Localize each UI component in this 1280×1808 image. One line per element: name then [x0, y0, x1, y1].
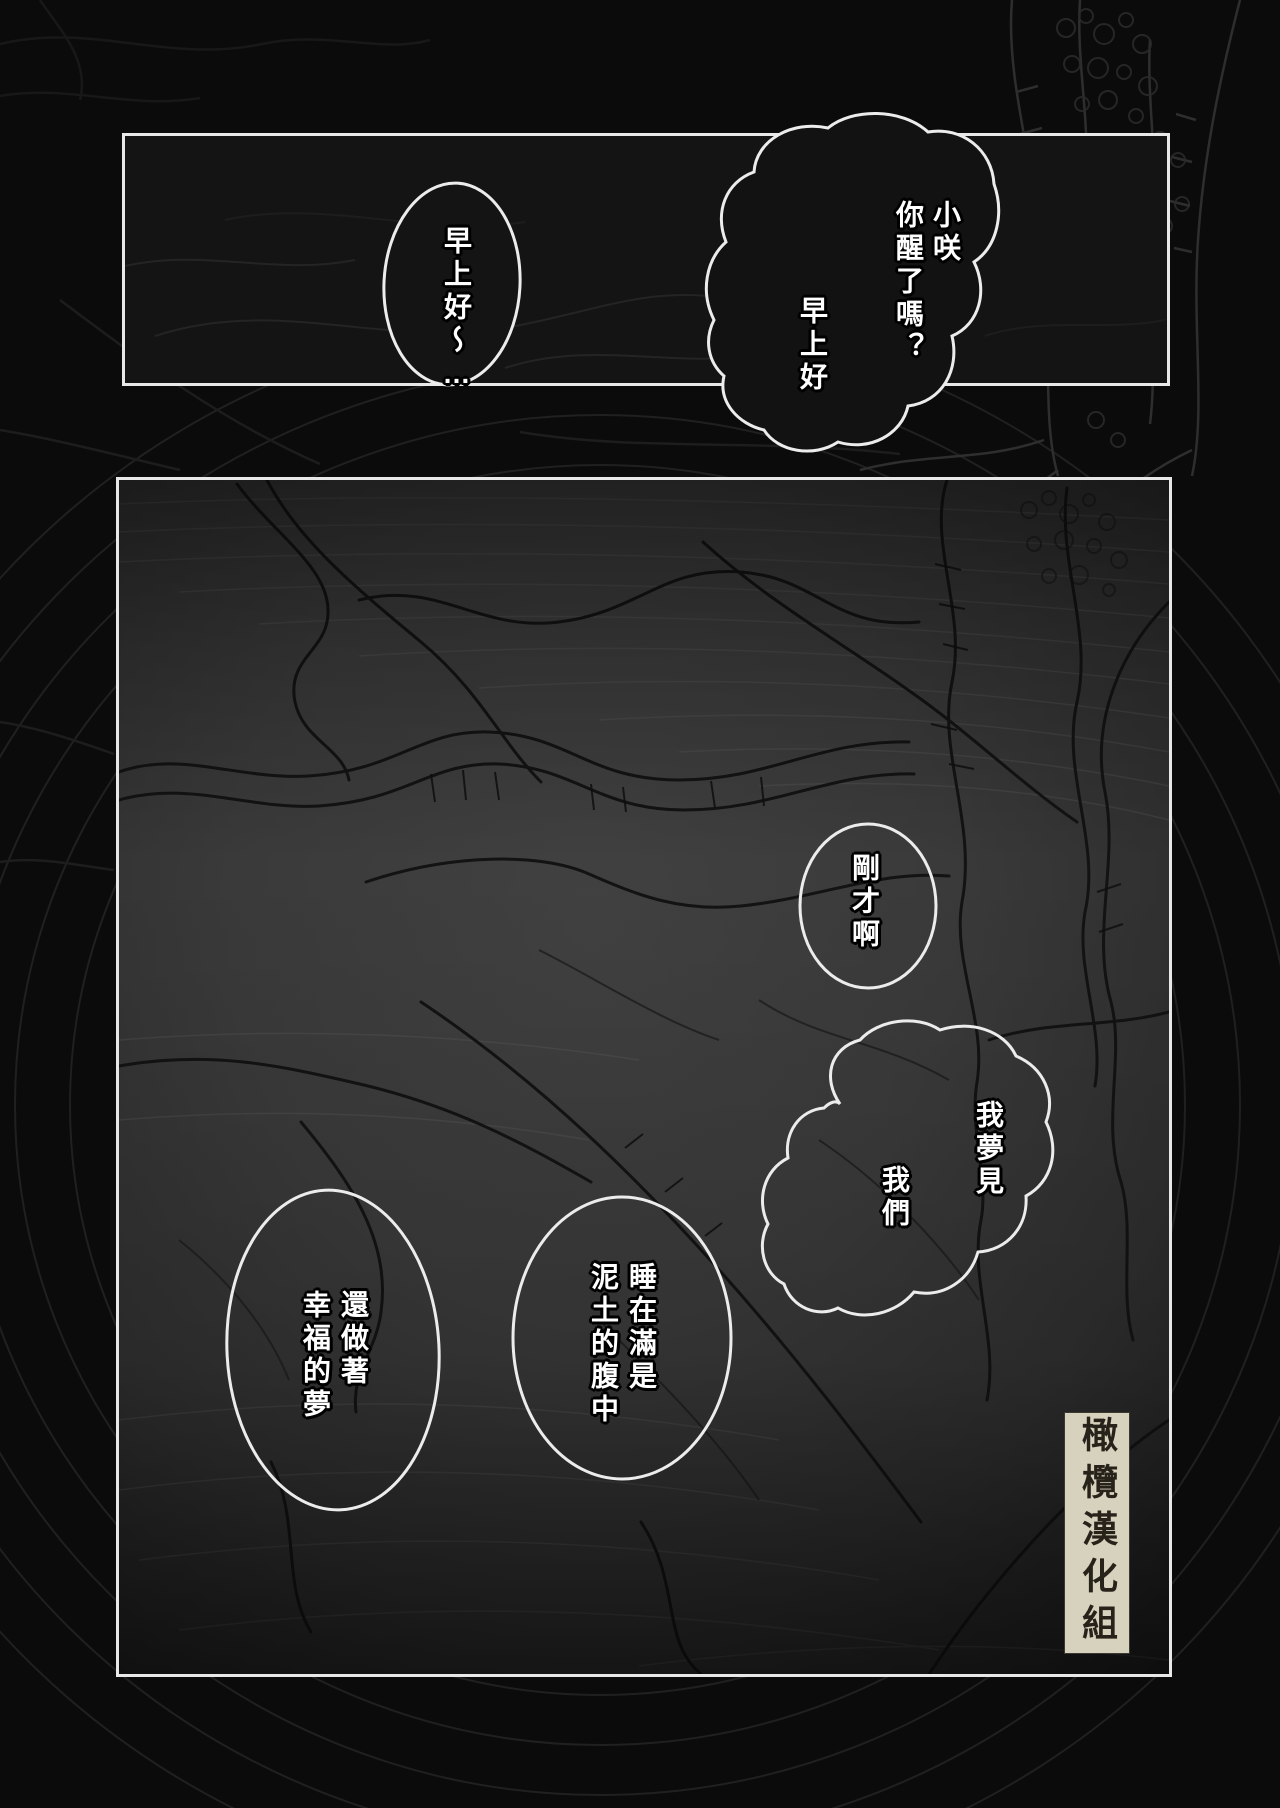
speech-text: 小咲: [927, 200, 963, 266]
speech-text: 還做著: [335, 1290, 371, 1389]
manga-page: 早上好～… 小咲 你醒了嗎？ 早上好 剛才啊 我夢見 我們 睡在滿是 泥土的腹中…: [0, 0, 1280, 1808]
speech-text: 早上好: [794, 296, 830, 395]
translator-credit-text: 橄欖漢化組: [1064, 1416, 1130, 1651]
speech-text: 你醒了嗎？: [890, 200, 926, 365]
speech-text: 幸福的夢: [297, 1290, 333, 1422]
speech-text: 我們: [876, 1165, 912, 1231]
bubble-sleeping-in-soil-shape: [513, 1197, 731, 1479]
translator-credit: 橄欖漢化組: [1064, 1412, 1130, 1654]
speech-text: 睡在滿是: [623, 1262, 659, 1394]
speech-text: 剛才啊: [846, 853, 882, 952]
bubble-happy-dream-shape: [219, 1185, 447, 1516]
bubble-wake-up-call-shape: [706, 113, 998, 451]
speech-text: 我夢見: [970, 1100, 1006, 1199]
speech-text: 泥土的腹中: [585, 1262, 621, 1427]
speech-text: 早上好～…: [438, 226, 474, 394]
